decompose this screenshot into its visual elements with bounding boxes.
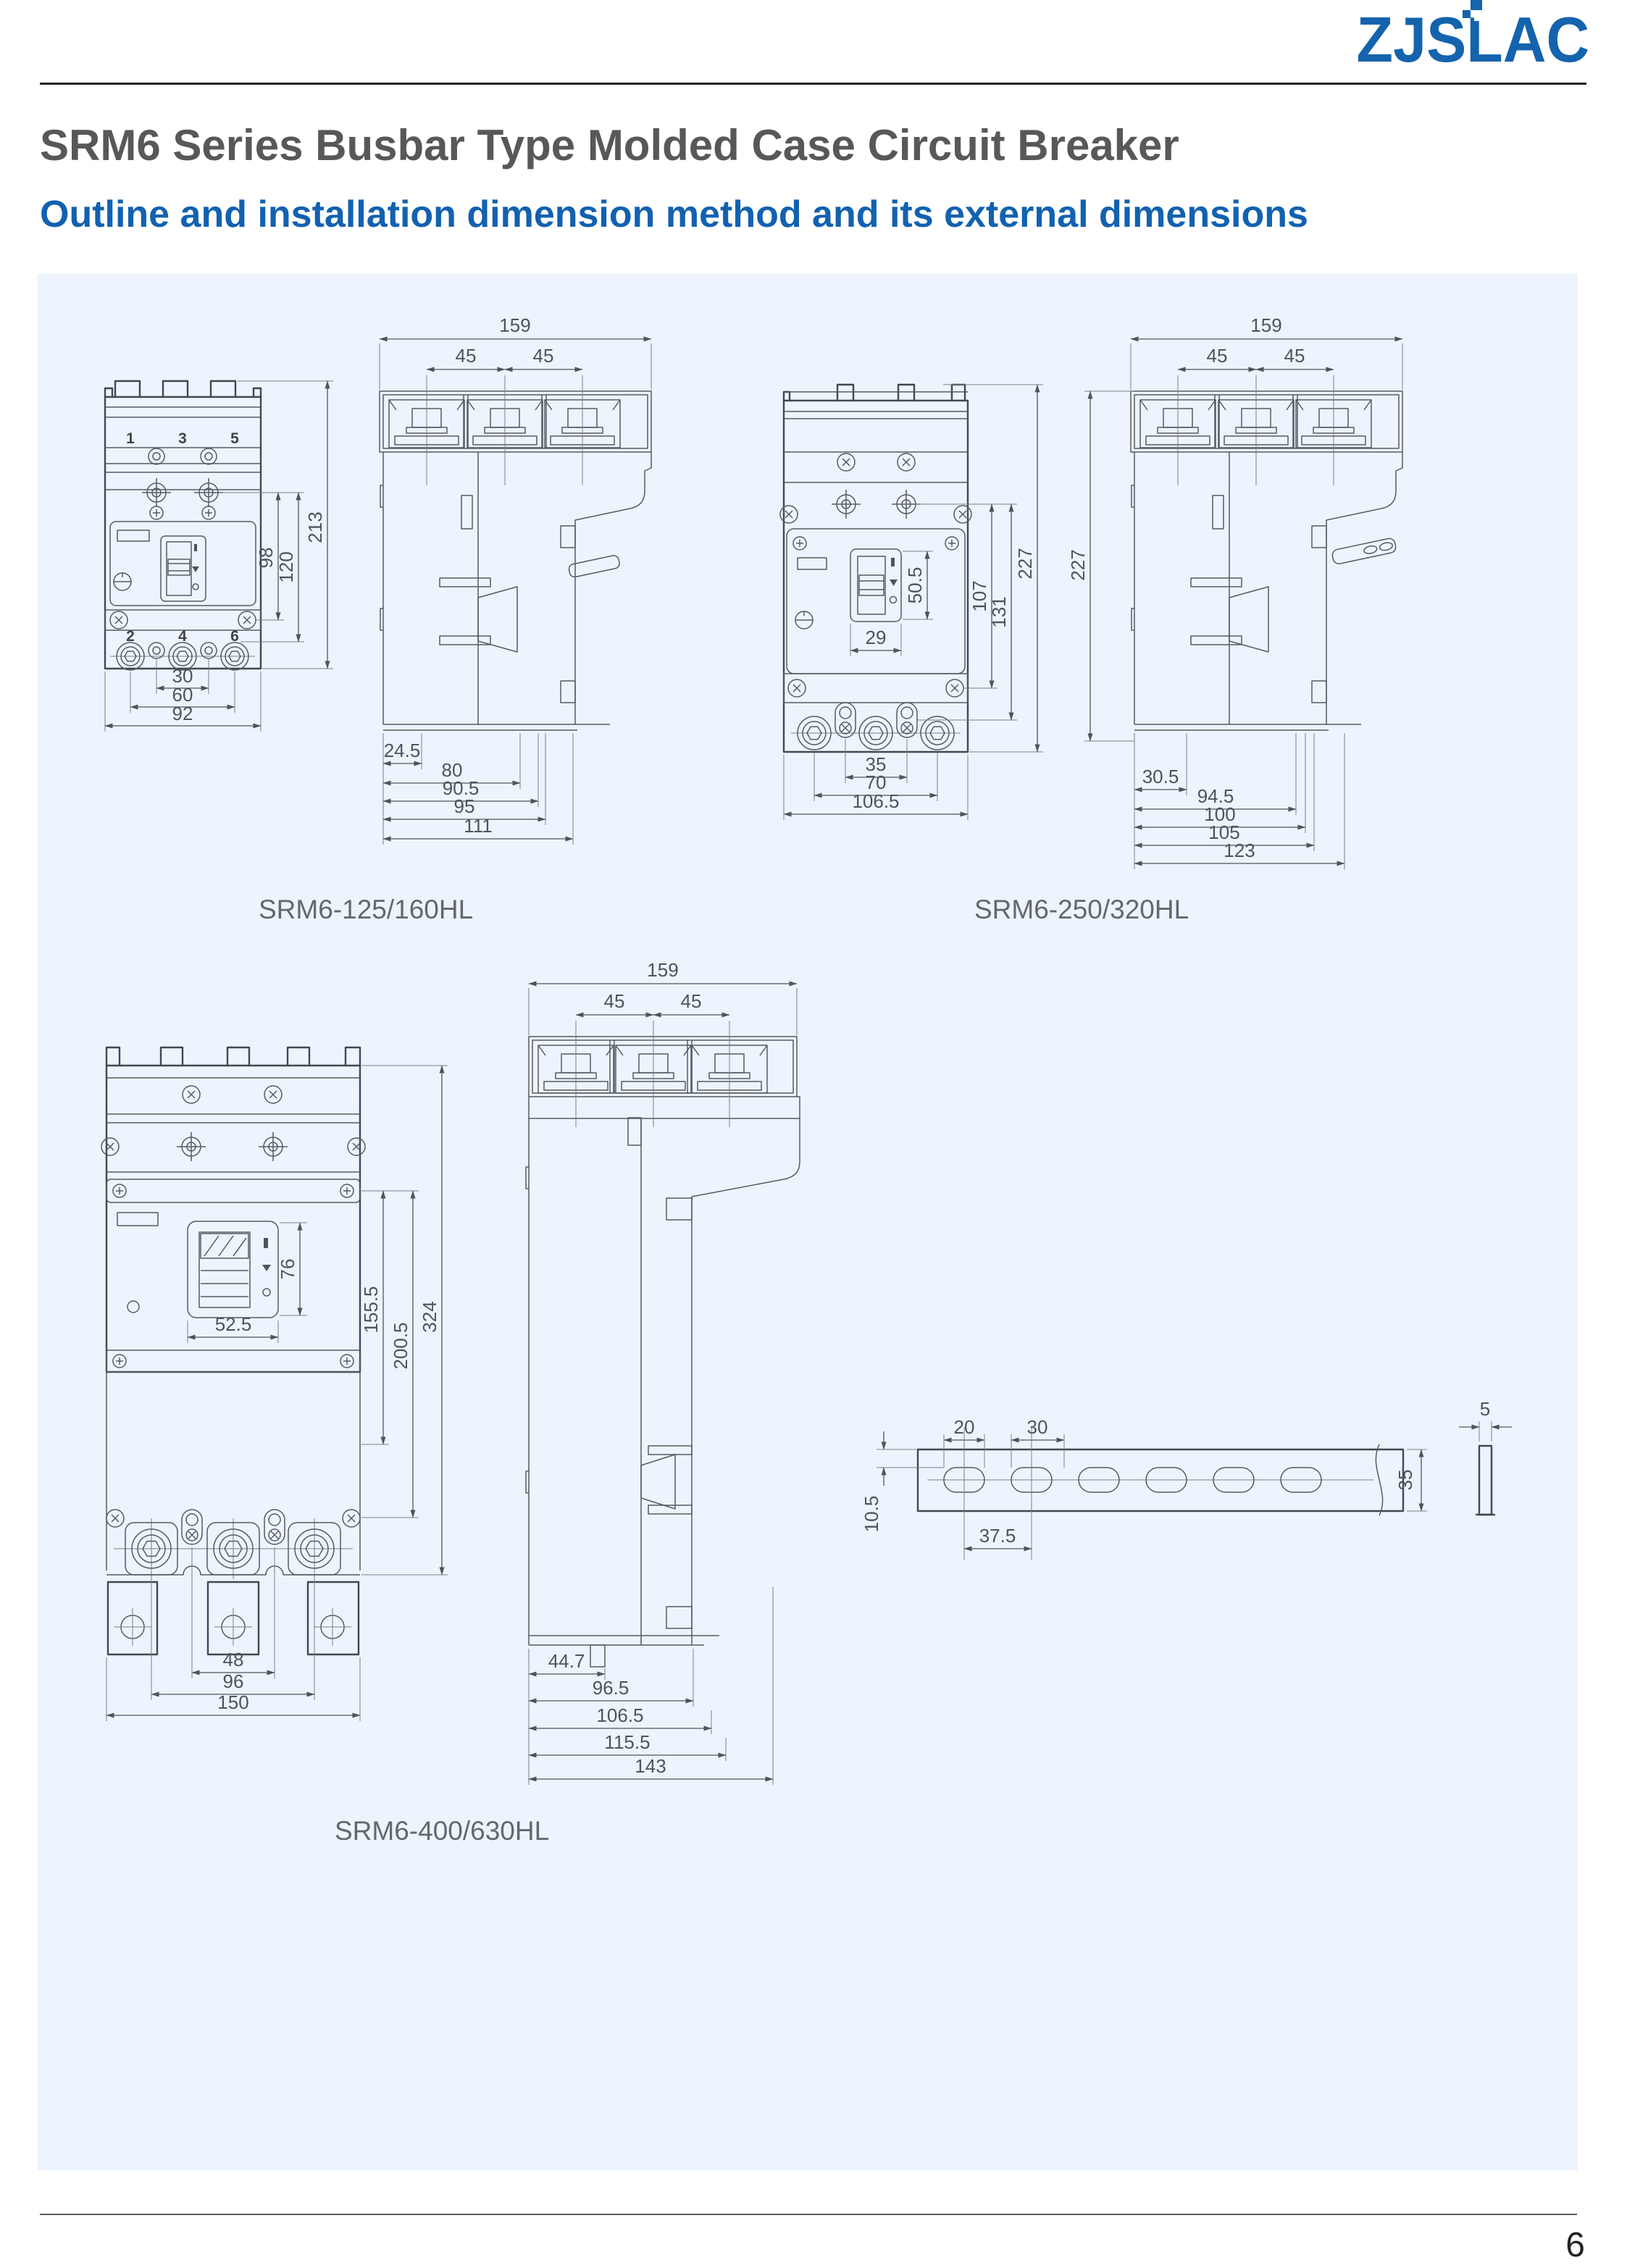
figure-caption: SRM6-400/630HL — [335, 1816, 549, 1846]
dim-label: 45 — [1207, 345, 1228, 367]
dim-label: 111 — [464, 815, 493, 837]
dim-label: 98 — [255, 548, 277, 569]
dim-label: 227 — [1067, 549, 1089, 580]
fig2-front-dimensions: 50.5 29 35 70 106.5 107 131 227 — [784, 385, 1043, 820]
logo-mosaic-square-icon — [1463, 10, 1471, 18]
dim-label: 150 — [217, 1691, 248, 1713]
dim-label: 159 — [499, 314, 530, 336]
dim-label: 30.5 — [1142, 766, 1179, 787]
dim-label: 45 — [681, 990, 702, 1012]
dim-label: 115.5 — [604, 1731, 650, 1753]
dim-label: 143 — [635, 1755, 666, 1777]
dim-label: 123 — [1224, 840, 1255, 861]
dim-label: 92 — [172, 703, 193, 724]
dim-label: 76 — [277, 1259, 298, 1280]
dim-label: 159 — [1250, 314, 1281, 336]
dim-label: 52.5 — [215, 1313, 252, 1335]
dim-label: 45 — [456, 345, 477, 367]
fig1-front-view: 1 3 5 2 4 6 — [105, 381, 261, 670]
brand-logo-text: ZJSLAC — [1356, 3, 1589, 77]
fig1-front-dimensions: 30 60 92 98 120 213 — [105, 381, 333, 732]
dim-label: 155.5 — [360, 1286, 382, 1333]
page-title: SRM6 Series Busbar Type Molded Case Circ… — [40, 120, 1179, 170]
dim-label: 29 — [866, 627, 887, 648]
dim-label: 324 — [419, 1301, 440, 1332]
fig2-front-view — [780, 385, 971, 752]
header-rule — [40, 83, 1586, 85]
dim-label: 45 — [1284, 345, 1305, 367]
dim-label: 95 — [454, 795, 475, 817]
page-subtitle: Outline and installation dimension metho… — [40, 193, 1308, 236]
fig1-side-view: 159 45 45 24.5 80 90.5 95 111 — [380, 314, 651, 845]
busbar-drawing: 20 30 37.5 10.5 35 — [861, 1416, 1427, 1560]
fig3-side-view: 159 45 45 44.7 96.5 106.5 115.5 143 — [526, 959, 800, 1785]
dim-label: 37.5 — [979, 1525, 1016, 1547]
dim-label: 44.7 — [548, 1650, 585, 1672]
dim-label: 45 — [533, 345, 554, 367]
busbar-thickness-view: 5 — [1459, 1398, 1512, 1515]
dim-label: 213 — [304, 511, 326, 543]
brand-logo: ZJSLAC — [1342, 3, 1589, 75]
dim-label: 200.5 — [390, 1322, 411, 1369]
technical-drawing: 1 3 5 2 4 6 30 60 92 98 120 213 159 45 4… — [38, 274, 1578, 2170]
dim-label: 24.5 — [384, 740, 421, 761]
dim-label: 20 — [954, 1416, 975, 1438]
figure-caption: SRM6-250/320HL — [974, 895, 1189, 924]
dim-label: 106.5 — [596, 1704, 643, 1726]
dim-label: 30 — [1027, 1416, 1048, 1438]
drawing-panel: 1 3 5 2 4 6 30 60 92 98 120 213 159 45 4… — [38, 274, 1578, 2170]
dim-label: 106.5 — [852, 790, 899, 812]
dim-label: 107 — [969, 580, 990, 611]
fig2-side-dimensions: 159 45 45 227 30.5 94.5 100 105 123 — [1067, 314, 1402, 869]
logo-mosaic-square-icon — [1474, 13, 1482, 21]
logo-mosaic-square-icon — [1471, 0, 1482, 10]
fig2-side-view: 159 45 45 227 30.5 94.5 100 105 123 — [1067, 314, 1402, 869]
fig1-side-dimensions: 159 45 45 24.5 80 90.5 95 111 — [380, 314, 651, 845]
pole-number: 5 — [230, 430, 239, 447]
pole-number: 1 — [126, 430, 135, 447]
dim-label: 159 — [647, 959, 678, 981]
dim-label: 96 — [223, 1670, 244, 1692]
dim-label: 50.5 — [904, 567, 926, 604]
dim-label: 35 — [1394, 1470, 1416, 1491]
dim-label: 227 — [1014, 548, 1036, 579]
dim-label: 5 — [1480, 1398, 1490, 1420]
fig3-front-view — [101, 1047, 365, 1654]
dim-label: 120 — [275, 551, 297, 582]
dim-label: 96.5 — [593, 1677, 630, 1699]
fig3-side-dimensions: 159 45 45 44.7 96.5 106.5 115.5 143 — [529, 959, 797, 1785]
dim-label: 48 — [223, 1649, 244, 1670]
footer-rule — [40, 2214, 1577, 2215]
pole-number: 3 — [178, 430, 187, 447]
figure-caption: SRM6-125/160HL — [259, 895, 473, 924]
dim-label: 45 — [604, 990, 625, 1012]
page-number: 6 — [1565, 2225, 1585, 2265]
dim-label: 131 — [988, 596, 1010, 627]
dim-label: 10.5 — [861, 1496, 882, 1533]
